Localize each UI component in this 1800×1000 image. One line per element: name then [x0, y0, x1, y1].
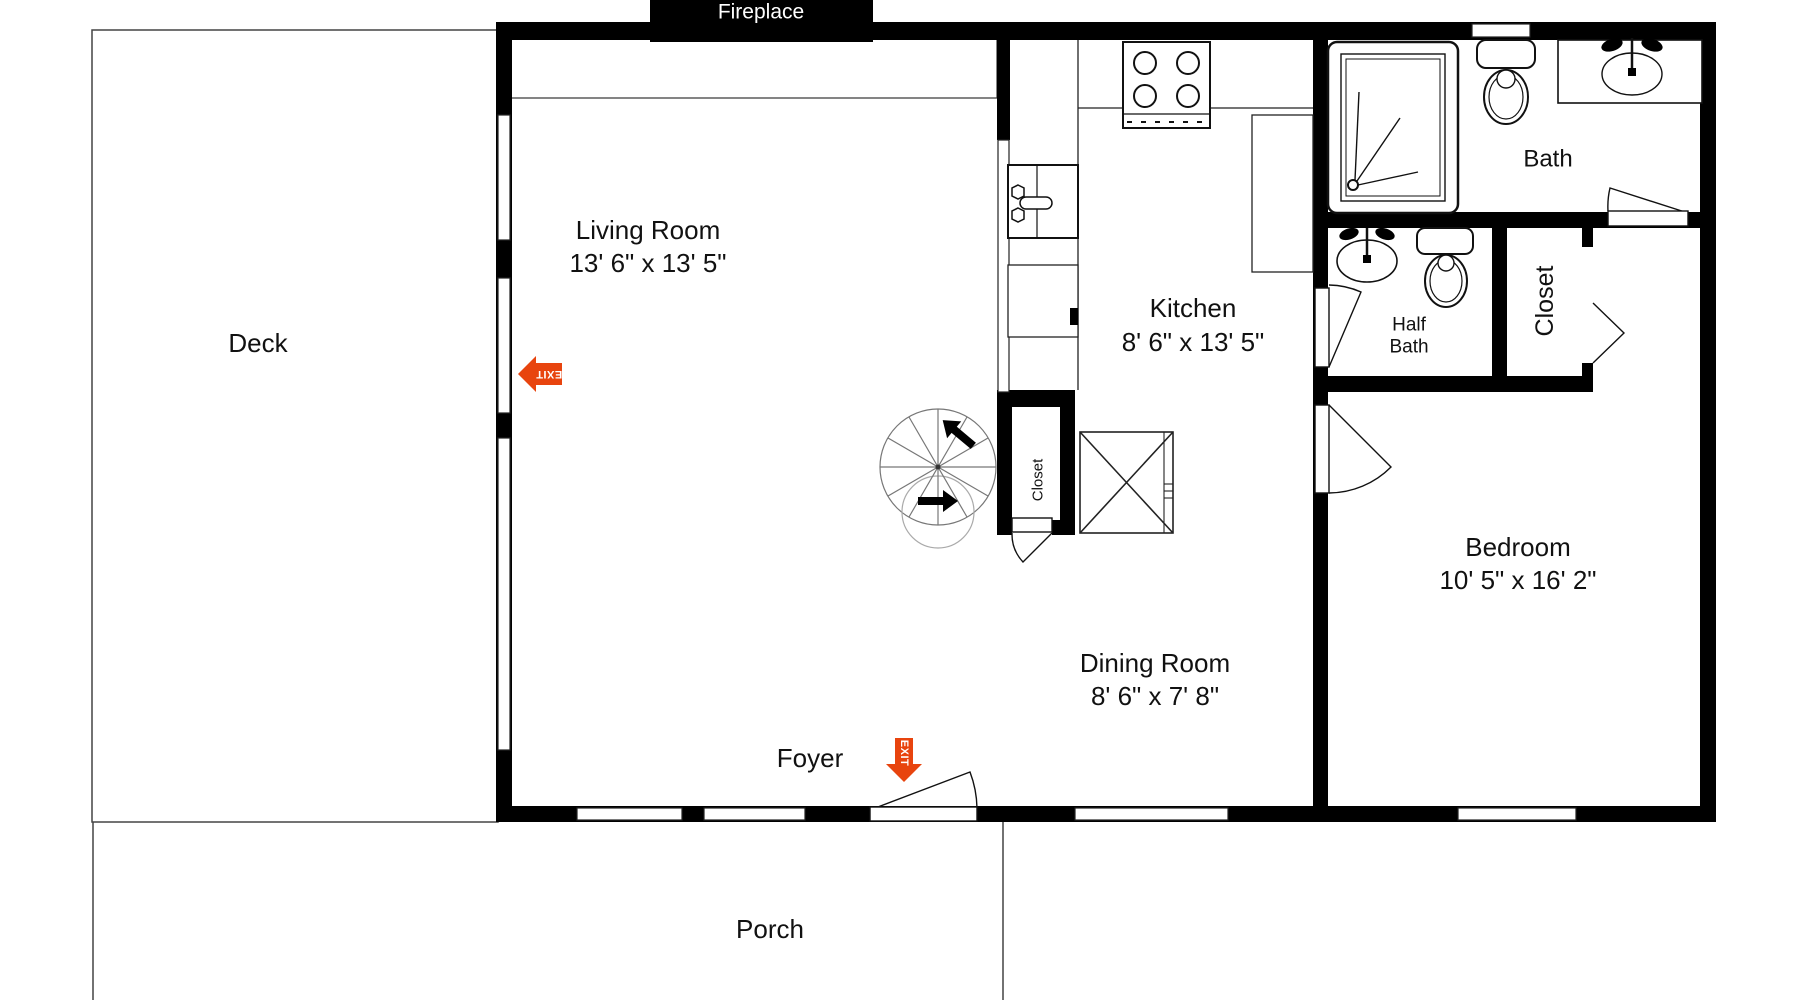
bedroom-dimensions: 10' 5" x 16' 2" [1439, 565, 1596, 595]
bedroom-label: Bedroom [1465, 532, 1571, 562]
kitchen-label: Kitchen [1150, 293, 1237, 323]
hall-closet-label: Closet [1531, 266, 1559, 337]
doors [870, 188, 1688, 821]
exit-sign-west-label: EXIT [536, 368, 562, 380]
porch-label: Porch [736, 914, 804, 944]
spiral-staircase [880, 409, 996, 548]
window-south-bedroom [1458, 808, 1576, 820]
dishwasher [1008, 265, 1078, 337]
half-bath-sink [1337, 226, 1397, 282]
half-bath-toilet [1417, 228, 1473, 307]
stove [1123, 42, 1210, 128]
refrigerator [1252, 115, 1313, 272]
kitchen-sink [1008, 165, 1078, 238]
window-south-3 [1075, 808, 1228, 820]
foyer-door [870, 772, 977, 821]
fireplace-hearth [508, 38, 997, 98]
foyer-label: Foyer [777, 743, 844, 773]
half-bath-label-line2: Bath [1389, 337, 1428, 358]
dining-room-label: Dining Room [1080, 648, 1230, 678]
shower [1328, 42, 1458, 213]
window-bath [1472, 24, 1530, 37]
window-south-2 [704, 808, 805, 820]
floor-plan: Fireplace [0, 0, 1800, 1000]
kitchen-dimensions: 8' 6" x 13' 5" [1122, 327, 1265, 357]
window-south-1 [577, 808, 682, 820]
exit-sign-foyer: EXIT [886, 738, 922, 782]
half-bath-door [1315, 285, 1361, 367]
exit-sign-west: EXIT [518, 356, 562, 392]
half-bath-label-line1: Half [1392, 315, 1427, 336]
living-room-dimensions: 13' 6" x 13' 5" [569, 248, 726, 278]
fireplace: Fireplace [650, 0, 873, 42]
stairs-closet-door [1012, 518, 1052, 562]
deck-label: Deck [228, 328, 288, 358]
deck-area [92, 30, 498, 822]
floor-plan-canvas: Fireplace [0, 0, 1800, 1000]
exit-sign-foyer-label: EXIT [898, 740, 910, 766]
stairs-closet-label: Closet [1030, 458, 1047, 501]
living-room-label: Living Room [576, 215, 721, 245]
bath-vanity-sink [1558, 36, 1702, 103]
stair-arrow-up [936, 412, 981, 455]
bath-door [1608, 188, 1688, 226]
fireplace-label: Fireplace [718, 1, 804, 24]
porch-area [93, 822, 1003, 1000]
hall-closet-door [1593, 303, 1624, 363]
window-west-3 [498, 438, 510, 750]
bath-label: Bath [1523, 146, 1572, 173]
bath-toilet [1477, 40, 1535, 124]
utility-unit [1080, 432, 1173, 533]
dining-room-dimensions: 8' 6" x 7' 8" [1091, 681, 1219, 711]
window-west-2 [498, 278, 510, 413]
bedroom-door [1315, 405, 1391, 493]
window-west-1 [498, 115, 510, 240]
